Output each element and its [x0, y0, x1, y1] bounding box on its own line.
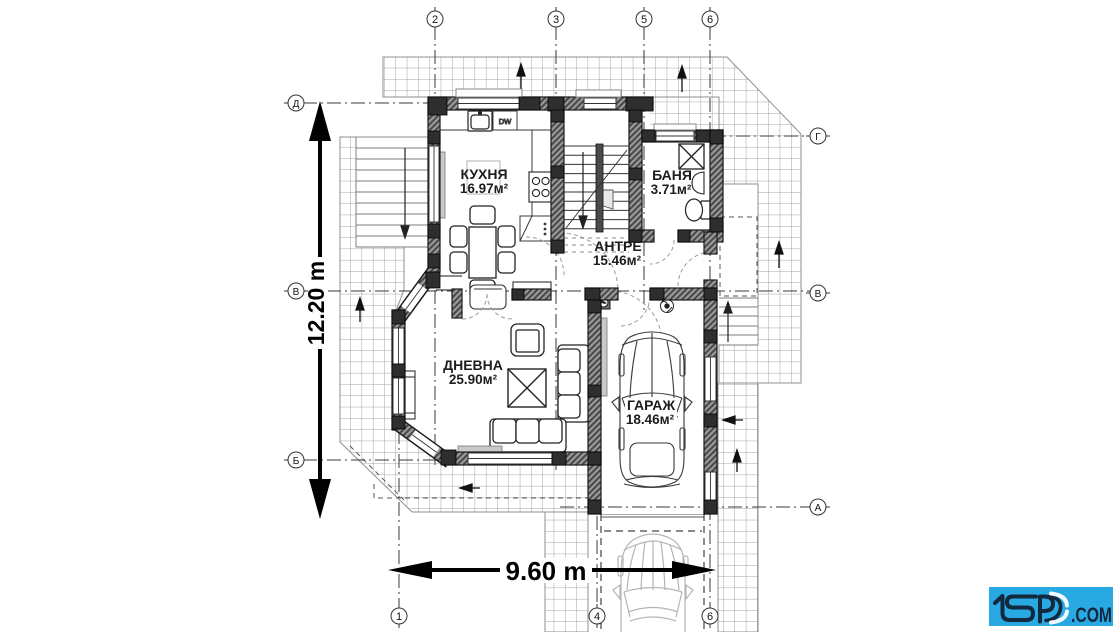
svg-text:В: В — [293, 287, 300, 298]
svg-text:DW: DW — [499, 117, 512, 126]
svg-text:3: 3 — [553, 14, 559, 26]
svg-text:4: 4 — [594, 611, 600, 623]
svg-text:2: 2 — [432, 14, 438, 26]
svg-text:12.20 m: 12.20 m — [303, 261, 329, 345]
svg-text:18.46м²: 18.46м² — [626, 412, 675, 427]
svg-text:ДНЕВНА: ДНЕВНА — [443, 357, 503, 373]
svg-text:БАНЯ: БАНЯ — [652, 167, 692, 183]
svg-text:1: 1 — [396, 611, 402, 623]
svg-text:9.60 m: 9.60 m — [506, 556, 587, 586]
svg-text:3.71м²: 3.71м² — [651, 182, 692, 197]
svg-text:Г: Г — [815, 132, 821, 143]
svg-text:АНТРЕ: АНТРЕ — [594, 238, 641, 254]
svg-text:15.46м²: 15.46м² — [593, 253, 642, 268]
svg-text:Д: Д — [293, 99, 300, 110]
svg-text:.COM: .COM — [1071, 604, 1112, 627]
svg-text:6: 6 — [707, 14, 713, 26]
svg-text:16.97м²: 16.97м² — [460, 181, 509, 196]
svg-text:ГАРАЖ: ГАРАЖ — [627, 397, 675, 413]
svg-text:25.90м²: 25.90м² — [449, 372, 498, 387]
svg-text:А: А — [815, 503, 822, 514]
svg-text:Б: Б — [293, 456, 300, 467]
svg-text:В: В — [815, 289, 822, 300]
svg-text:КУХНЯ: КУХНЯ — [460, 166, 507, 182]
svg-text:5: 5 — [641, 14, 647, 26]
svg-text:6: 6 — [707, 611, 713, 623]
